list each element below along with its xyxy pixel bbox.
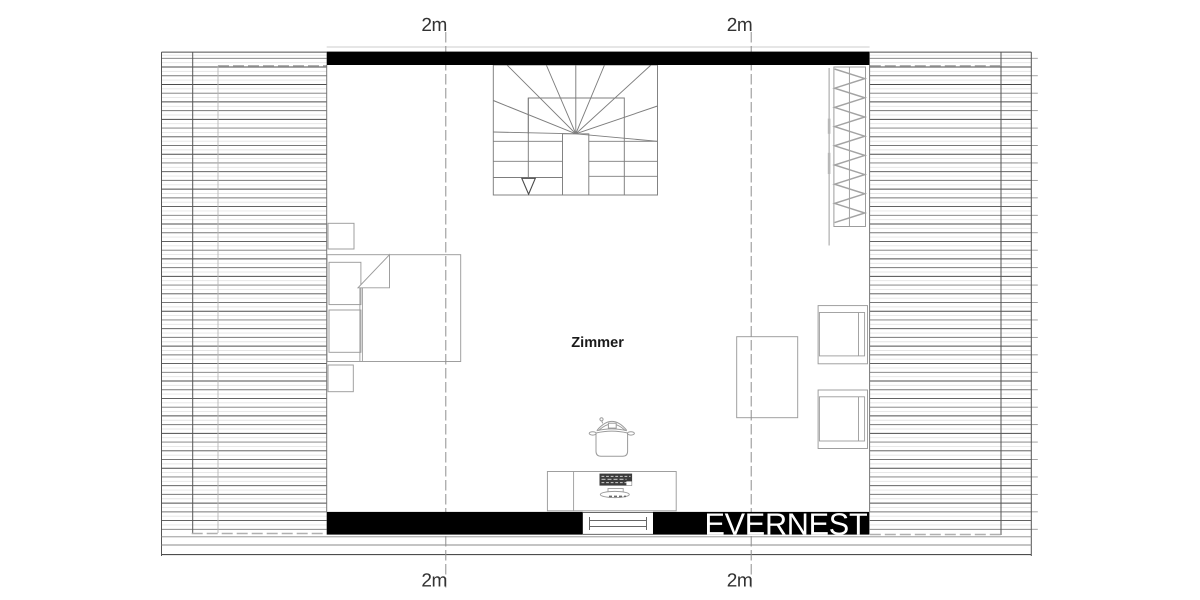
svg-text:2m: 2m [727, 15, 753, 36]
svg-text:Zimmer: Zimmer [571, 335, 624, 351]
svg-text:EVERNEST: EVERNEST [705, 507, 868, 541]
svg-text:2m: 2m [727, 571, 753, 592]
svg-text:2m: 2m [421, 15, 447, 36]
svg-text:2m: 2m [421, 571, 447, 592]
